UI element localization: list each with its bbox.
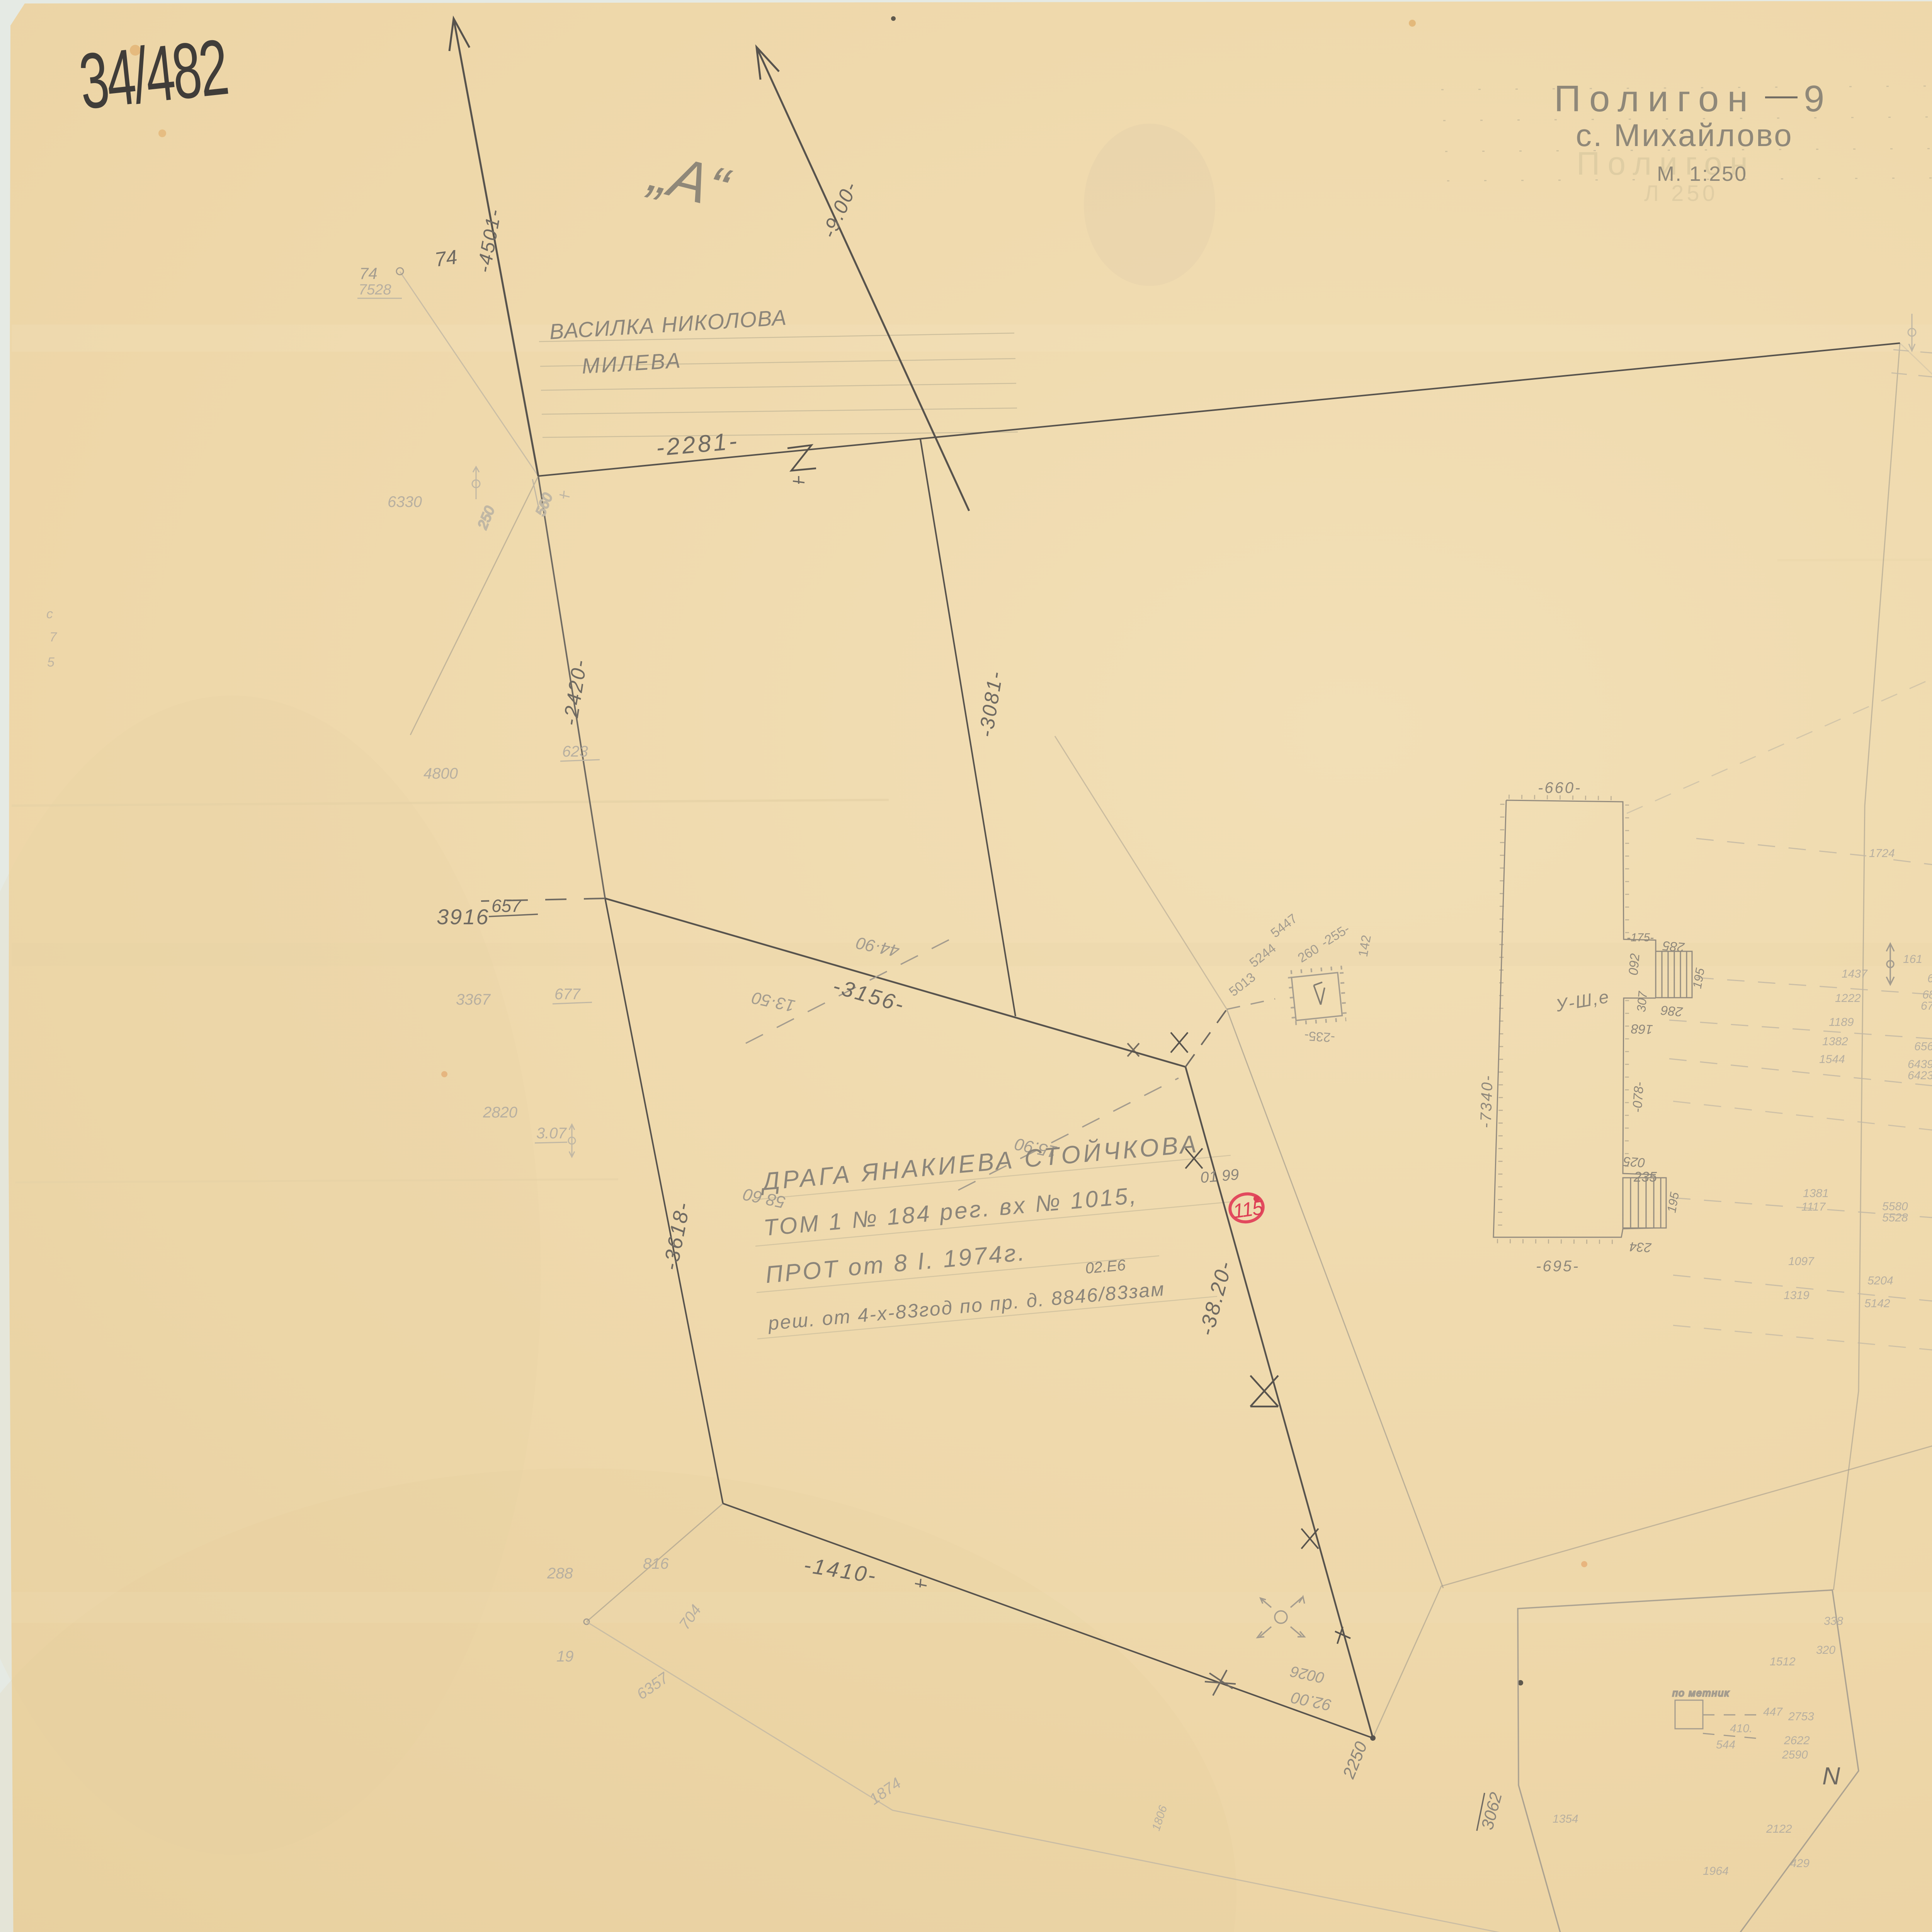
svg-text:1319: 1319 [1784, 1289, 1810, 1302]
svg-text:092: 092 [1626, 953, 1643, 976]
svg-text:по метник: по метник [1672, 1687, 1730, 1699]
svg-text:4800: 4800 [423, 765, 458, 782]
svg-text:-175-: -175- [1627, 931, 1654, 944]
svg-text:338: 338 [1824, 1615, 1843, 1628]
svg-text:-695-: -695- [1536, 1258, 1580, 1275]
svg-text:-078-: -078- [1630, 1082, 1646, 1113]
svg-text:320: 320 [1816, 1644, 1835, 1656]
svg-text:-235-: -235- [1304, 1028, 1335, 1045]
svg-text:3916: 3916 [437, 905, 490, 929]
svg-text:2122: 2122 [1766, 1823, 1792, 1835]
svg-text:285: 285 [1662, 938, 1685, 955]
svg-text:9: 9 [1804, 78, 1824, 119]
svg-text:288: 288 [547, 1565, 573, 1582]
svg-text:74: 74 [359, 264, 378, 282]
svg-text:74: 74 [434, 246, 459, 271]
svg-text:307: 307 [1634, 990, 1650, 1013]
svg-text:3367: 3367 [456, 991, 491, 1008]
svg-text:115: 115 [1231, 1196, 1265, 1223]
svg-text:025: 025 [1623, 1154, 1646, 1170]
svg-text:01 99: 01 99 [1200, 1166, 1240, 1187]
svg-text:544: 544 [1716, 1738, 1735, 1751]
svg-text:с. Михайлово: с. Михайлово [1576, 118, 1793, 153]
svg-text:1117: 1117 [1801, 1201, 1826, 1213]
svg-text:2820: 2820 [483, 1104, 517, 1121]
svg-text:234: 234 [1629, 1239, 1652, 1255]
svg-text:7: 7 [49, 630, 57, 645]
svg-text:816: 816 [643, 1555, 669, 1572]
svg-text:5204: 5204 [1867, 1274, 1893, 1287]
svg-text:N: N [1822, 1762, 1840, 1790]
svg-text:6567: 6567 [1914, 1040, 1932, 1053]
svg-text:1512: 1512 [1770, 1655, 1796, 1668]
svg-text:34/482: 34/482 [75, 23, 231, 126]
svg-text:2753: 2753 [1788, 1710, 1814, 1723]
svg-text:447: 447 [1763, 1706, 1783, 1718]
svg-text:1544: 1544 [1819, 1053, 1845, 1066]
svg-text:3.07: 3.07 [536, 1125, 567, 1142]
svg-text:1189: 1189 [1829, 1016, 1854, 1029]
svg-text:6330: 6330 [388, 493, 422, 510]
svg-text:657: 657 [492, 896, 522, 916]
svg-text:1354: 1354 [1553, 1813, 1578, 1825]
svg-text:Полигон: Полигон [1554, 78, 1756, 119]
svg-text:1964: 1964 [1703, 1865, 1729, 1878]
svg-text:161: 161 [1903, 953, 1922, 966]
svg-text:-7340-: -7340- [1477, 1074, 1496, 1128]
svg-text:с: с [46, 607, 53, 621]
svg-text:1437: 1437 [1842, 968, 1868, 980]
svg-text:235: 235 [1633, 1169, 1657, 1185]
svg-text:410.: 410. [1730, 1722, 1752, 1735]
svg-text:1724: 1724 [1869, 847, 1895, 860]
svg-text:429: 429 [1790, 1857, 1810, 1870]
svg-text:М. 1:250: М. 1:250 [1657, 162, 1747, 185]
svg-text:286: 286 [1660, 1003, 1684, 1019]
svg-text:19: 19 [556, 1648, 574, 1665]
svg-text:623: 623 [562, 743, 588, 760]
svg-text:677: 677 [554, 986, 581, 1003]
svg-text:1097: 1097 [1788, 1255, 1815, 1268]
svg-text:6774: 6774 [1921, 1000, 1932, 1012]
svg-text:-660-: -660- [1538, 779, 1582, 796]
svg-text:5: 5 [47, 655, 54, 670]
svg-text:5142: 5142 [1864, 1297, 1890, 1310]
svg-text:1222: 1222 [1835, 992, 1861, 1005]
svg-text:168: 168 [1631, 1021, 1653, 1037]
svg-text:2590: 2590 [1782, 1748, 1808, 1761]
svg-text:7528: 7528 [359, 282, 391, 298]
svg-text:1381: 1381 [1803, 1187, 1829, 1200]
svg-text:1382: 1382 [1822, 1035, 1848, 1048]
svg-text:6932: 6932 [1927, 972, 1932, 985]
svg-text:6423: 6423 [1908, 1069, 1932, 1082]
svg-text:5528: 5528 [1882, 1211, 1908, 1224]
svg-text:2622: 2622 [1784, 1734, 1810, 1747]
svg-text:02.Е6: 02.Е6 [1085, 1257, 1127, 1277]
